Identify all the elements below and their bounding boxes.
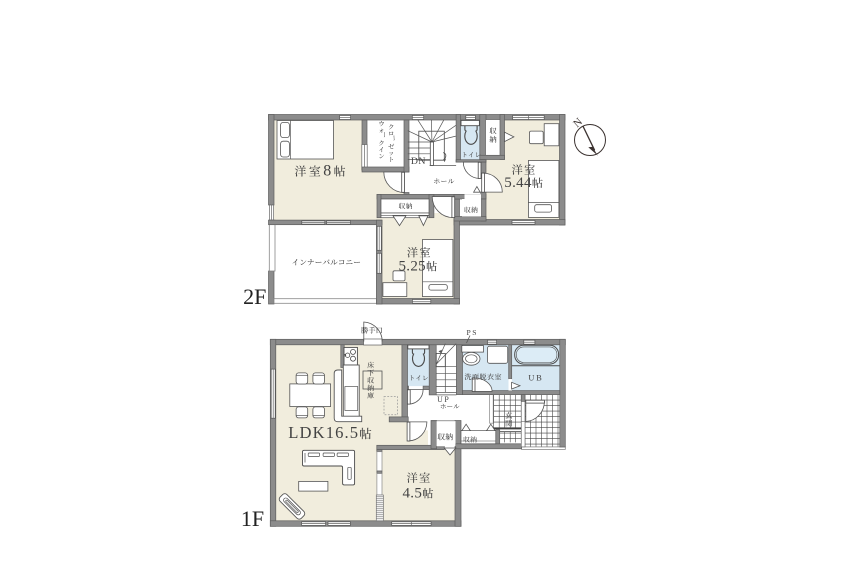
svg-text:LDK16.5: LDK16.5 [288, 423, 359, 442]
svg-text:5.25: 5.25 [399, 258, 426, 274]
svg-text:8: 8 [323, 163, 333, 180]
svg-text:UP: UP [437, 395, 450, 404]
svg-text:1F: 1F [241, 506, 264, 531]
svg-text:4.5: 4.5 [403, 486, 423, 502]
svg-text:UB: UB [528, 373, 543, 382]
svg-text:5.44: 5.44 [504, 175, 532, 191]
svg-text:2F: 2F [243, 284, 266, 309]
svg-text:DN: DN [411, 156, 426, 167]
svg-text:PS: PS [466, 328, 478, 337]
